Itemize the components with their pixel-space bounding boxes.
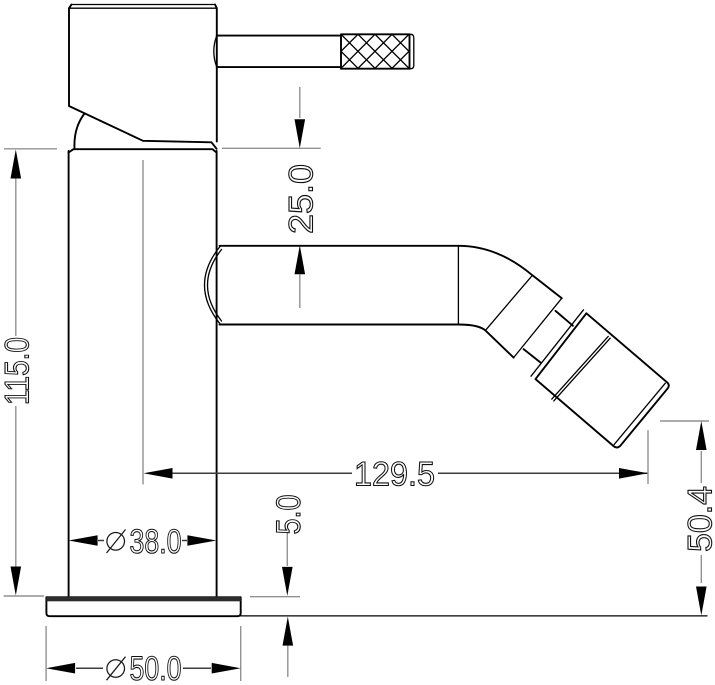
svg-text:50.4: 50.4 [682,486,715,552]
svg-text:5.0: 5.0 [270,495,308,535]
svg-text:129.5: 129.5 [354,456,435,494]
svg-text:25.0: 25.0 [283,164,321,234]
svg-text:38.0: 38.0 [130,523,182,561]
svg-text:50.0: 50.0 [130,650,182,685]
svg-text:115.0: 115.0 [0,337,37,405]
